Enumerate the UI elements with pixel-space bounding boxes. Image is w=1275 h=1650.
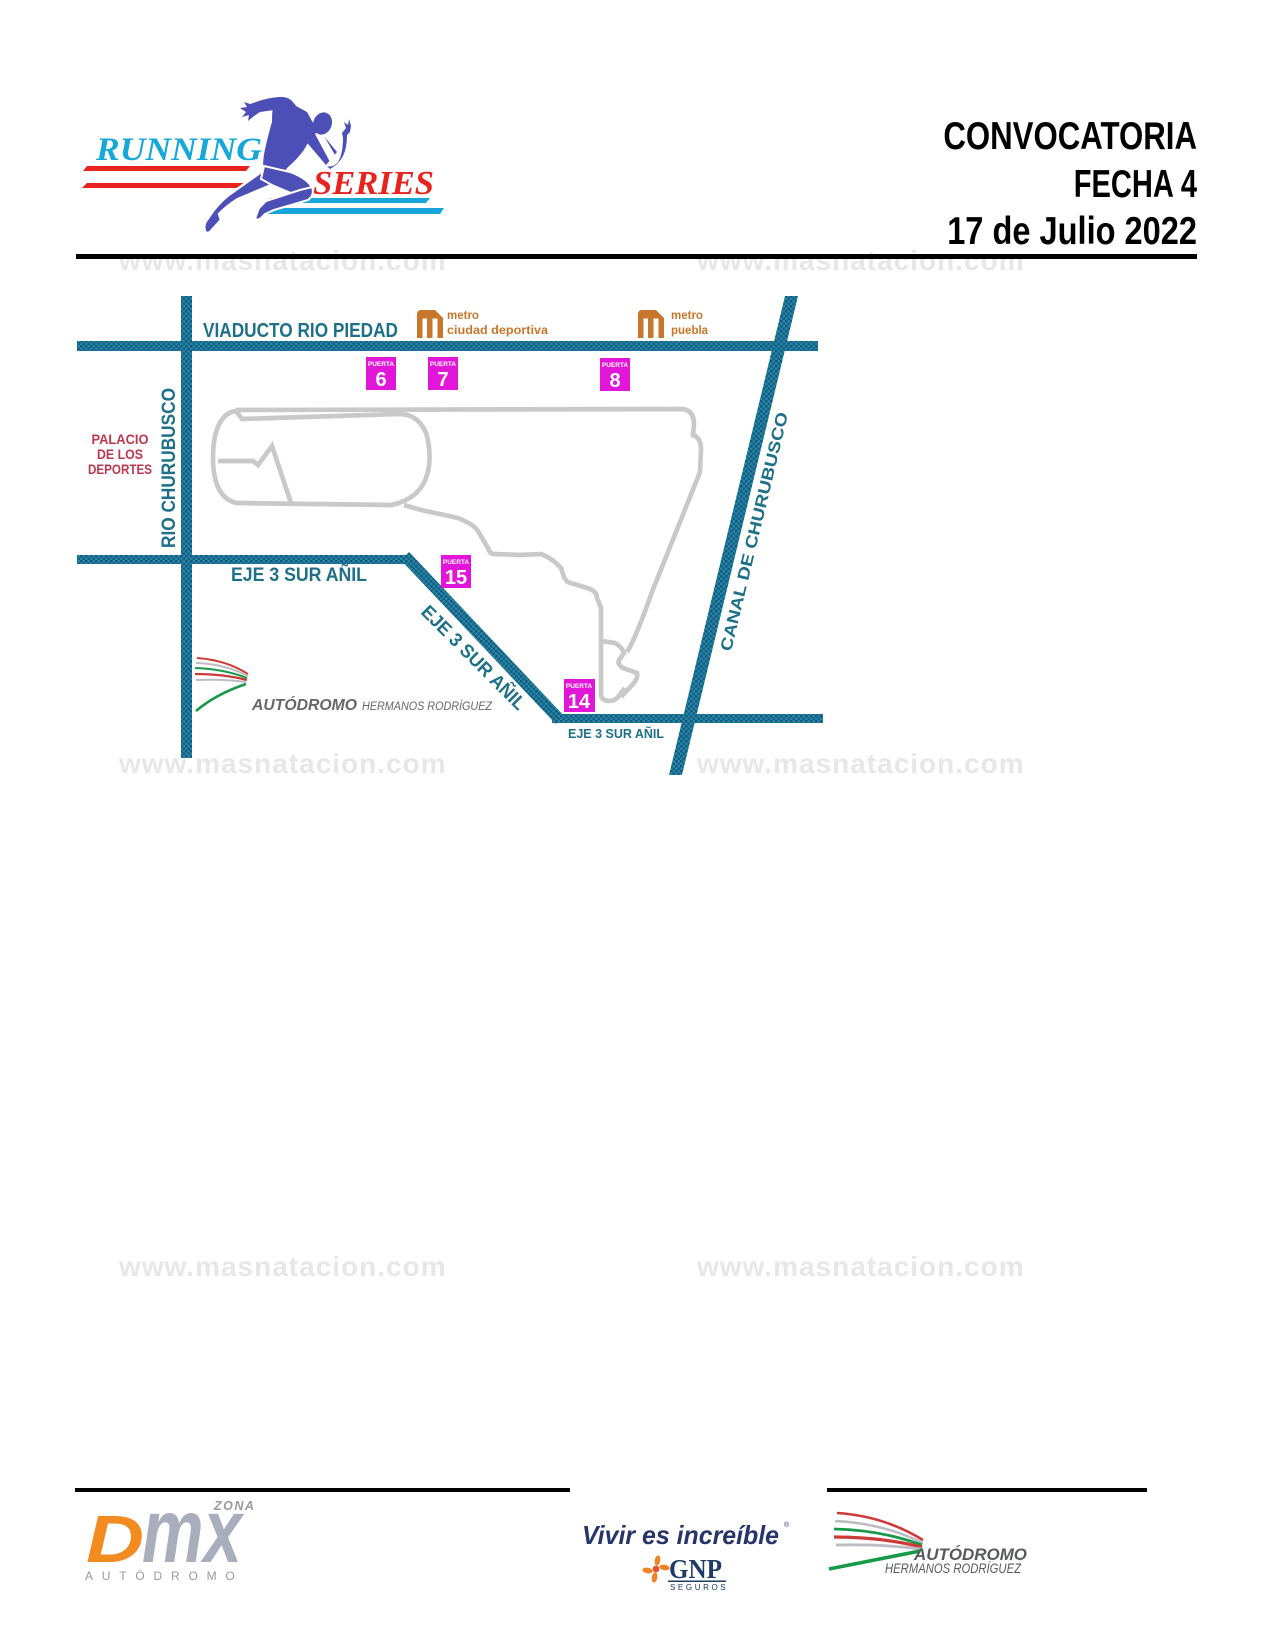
svg-text:SERIES: SERIES	[313, 165, 434, 202]
svg-text:8: 8	[609, 370, 620, 392]
svg-text:VIADUCTO RIO PIEDAD: VIADUCTO RIO PIEDAD	[203, 319, 398, 342]
svg-text:SEGUROS: SEGUROS	[670, 1583, 728, 1592]
svg-text:PUERTA: PUERTA	[430, 361, 457, 368]
svg-text:AUTÓDROMO: AUTÓDROMO	[85, 1568, 244, 1583]
svg-text:D: D	[86, 1501, 144, 1576]
svg-text:metro: metro	[447, 310, 479, 322]
svg-text:14: 14	[568, 691, 591, 713]
svg-text:HERMANOS RODRÍGUEZ: HERMANOS RODRÍGUEZ	[362, 700, 493, 713]
svg-text:PUERTA: PUERTA	[368, 361, 395, 368]
svg-text:RIO CHURUBUSCO: RIO CHURUBUSCO	[159, 388, 180, 548]
svg-text:PUERTA: PUERTA	[566, 683, 593, 690]
svg-text:EJE 3 SUR AÑIL: EJE 3 SUR AÑIL	[231, 564, 367, 586]
svg-text:Vivir es increíble: Vivir es increíble	[582, 1520, 779, 1550]
svg-text:6: 6	[375, 369, 386, 391]
svg-text:puebla: puebla	[671, 325, 709, 337]
svg-text:AUTÓDROMO: AUTÓDROMO	[251, 696, 357, 714]
svg-text:RUNNING: RUNNING	[95, 132, 262, 168]
svg-text:metro: metro	[671, 310, 703, 322]
svg-text:DE LOS: DE LOS	[97, 446, 143, 462]
svg-text:EJE 3 SUR AÑIL: EJE 3 SUR AÑIL	[568, 726, 664, 741]
svg-text:HERMANOS RODRÍGUEZ: HERMANOS RODRÍGUEZ	[885, 1561, 1022, 1576]
svg-text:15: 15	[445, 567, 467, 589]
svg-text:ciudad deportiva: ciudad deportiva	[447, 325, 549, 337]
svg-text:PUERTA: PUERTA	[443, 559, 470, 566]
svg-text:7: 7	[437, 369, 448, 391]
svg-text:DEPORTES: DEPORTES	[88, 461, 152, 477]
svg-text:PALACIO: PALACIO	[92, 431, 149, 447]
svg-text:EJE 3 SUR AÑIL: EJE 3 SUR AÑIL	[416, 601, 530, 715]
svg-text:GNP: GNP	[669, 1554, 722, 1584]
svg-text:PUERTA: PUERTA	[602, 362, 629, 369]
svg-text:®: ®	[784, 1521, 790, 1529]
